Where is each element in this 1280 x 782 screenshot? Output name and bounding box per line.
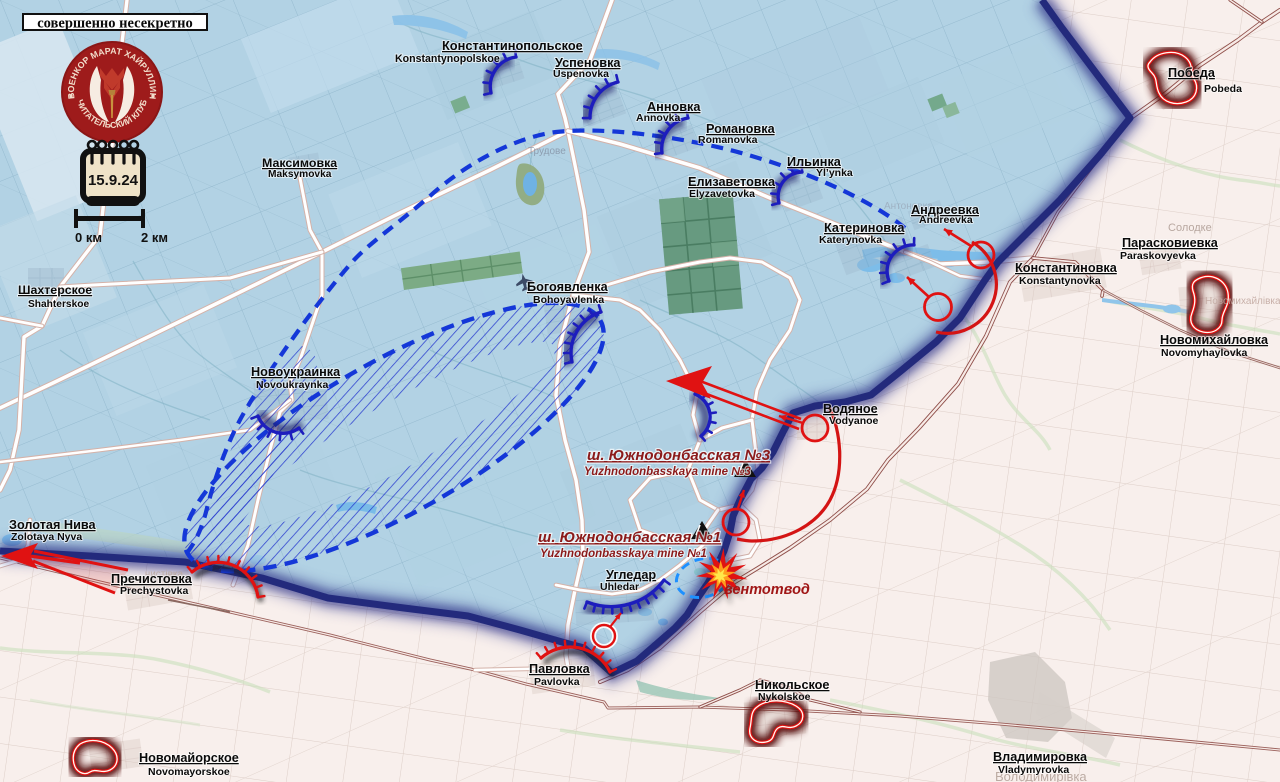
svg-text:Шахтерское: Шахтерское	[18, 283, 92, 297]
svg-text:вентотвод: вентотвод	[724, 582, 810, 598]
svg-text:Shahterskoe: Shahterskoe	[28, 299, 89, 310]
svg-text:Annovka: Annovka	[636, 112, 681, 124]
svg-text:Новомихайлівка: Новомихайлівка	[1205, 296, 1280, 307]
svg-text:Yuzhnodonbasskaya mine №3: Yuzhnodonbasskaya mine №3	[584, 466, 751, 478]
svg-text:Yl’ynka: Yl’ynka	[816, 167, 853, 179]
svg-text:Andreevka: Andreevka	[919, 214, 973, 226]
svg-text:Золотая Нива: Золотая Нива	[9, 518, 97, 532]
svg-text:Uhledar: Uhledar	[600, 581, 639, 593]
svg-text:Novomayorskoe: Novomayorskoe	[148, 766, 230, 778]
svg-text:Pavlovka: Pavlovka	[534, 676, 580, 688]
svg-text:Vodyanoe: Vodyanoe	[829, 415, 879, 427]
svg-text:Bohoyavlenka: Bohoyavlenka	[533, 294, 604, 306]
svg-text:Новомайорское: Новомайорское	[139, 751, 239, 765]
svg-text:Трудове: Трудове	[528, 146, 566, 157]
svg-text:Konstantynovka: Konstantynovka	[1019, 275, 1101, 287]
svg-text:Yuzhnodonbasskaya mine №1: Yuzhnodonbasskaya mine №1	[540, 548, 707, 560]
svg-text:Павловка: Павловка	[529, 662, 591, 676]
svg-text:Солодке: Солодке	[1168, 222, 1212, 234]
svg-text:Никольское: Никольское	[755, 678, 829, 692]
svg-text:15.9.24: 15.9.24	[88, 172, 139, 189]
svg-text:Maksymovka: Maksymovka	[268, 169, 332, 180]
svg-text:Победа: Победа	[1168, 66, 1216, 80]
svg-text:Romanovka: Romanovka	[698, 134, 758, 146]
svg-text:Pobeda: Pobeda	[1204, 83, 1242, 95]
svg-text:Пречистовка: Пречистовка	[111, 572, 193, 586]
svg-text:Катериновка: Катериновка	[824, 221, 905, 235]
svg-text:Елизаветовка: Елизаветовка	[688, 175, 776, 189]
svg-text:Максимовка: Максимовка	[262, 156, 337, 170]
svg-text:Uspenovka: Uspenovka	[553, 68, 609, 80]
svg-text:Угледар: Угледар	[606, 568, 656, 582]
svg-text:Novomyhaylovka: Novomyhaylovka	[1161, 347, 1248, 359]
svg-text:ш. Южнодонбасская №3: ш. Южнодонбасская №3	[587, 447, 771, 464]
svg-text:Константинопольское: Константинопольское	[442, 38, 583, 53]
svg-text:Prechystovka: Prechystovka	[120, 585, 188, 597]
svg-text:Konstantynopolskoe: Konstantynopolskoe	[395, 53, 500, 65]
svg-text:Новомихайловка: Новомихайловка	[1160, 333, 1269, 347]
svg-text:Elyzavetovka: Elyzavetovka	[689, 188, 755, 200]
svg-text:Владимировка: Владимировка	[993, 750, 1088, 764]
svg-text:Nykolskoe: Nykolskoe	[758, 691, 811, 703]
svg-text:Katerynovka: Katerynovka	[819, 234, 882, 246]
svg-text:2 км: 2 км	[141, 230, 168, 245]
svg-text:Novoukraynka: Novoukraynka	[256, 379, 329, 391]
svg-text:Zolotaya Nyva: Zolotaya Nyva	[11, 531, 82, 543]
svg-text:Водяное: Водяное	[823, 402, 878, 416]
svg-text:совершенно несекретно: совершенно несекретно	[37, 16, 193, 32]
svg-text:Парасковиевка: Парасковиевка	[1122, 236, 1219, 250]
svg-text:Paraskovyevka: Paraskovyevka	[1120, 250, 1196, 262]
svg-text:Богоявленка: Богоявленка	[527, 280, 609, 294]
svg-text:Vladymyrovka: Vladymyrovka	[998, 764, 1069, 776]
svg-text:ш. Южнодонбасская №1: ш. Южнодонбасская №1	[538, 529, 721, 546]
svg-text:0 км: 0 км	[75, 230, 102, 245]
svg-text:Константиновка: Константиновка	[1015, 261, 1118, 275]
svg-text:Новоукраинка: Новоукраинка	[251, 365, 341, 379]
